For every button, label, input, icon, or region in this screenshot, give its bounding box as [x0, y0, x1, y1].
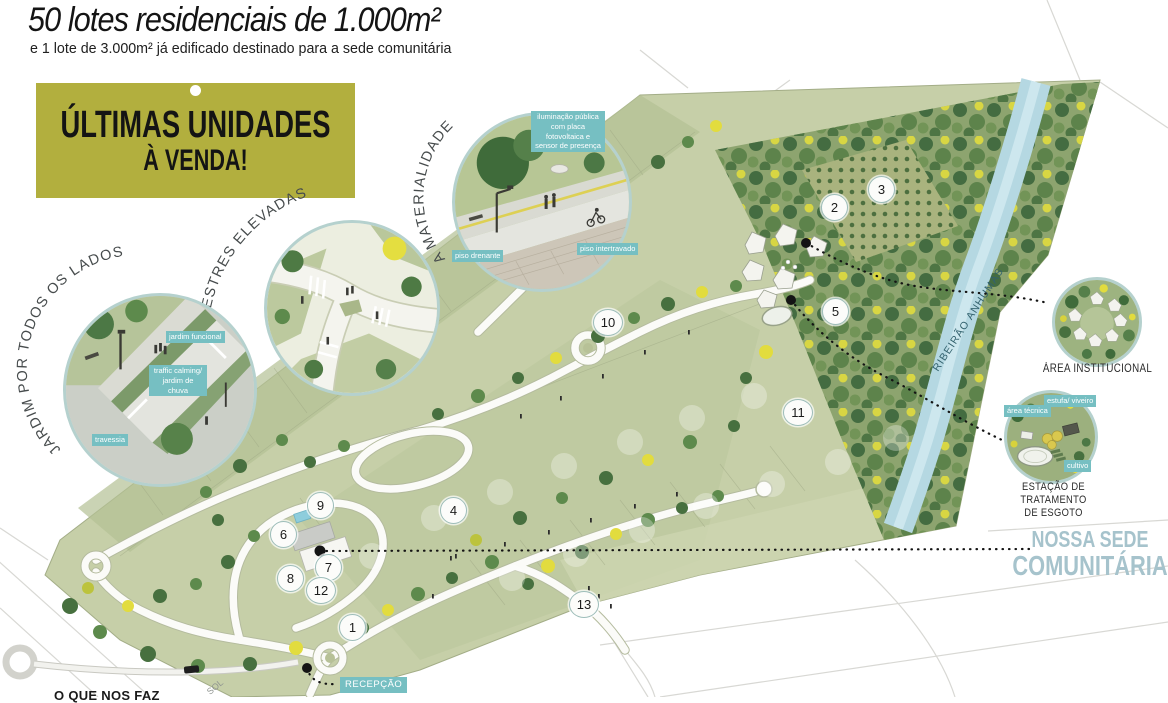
map-marker-8: 8: [277, 565, 304, 592]
chip-piso-intertravado: piso intertravado: [577, 243, 638, 255]
caption-ete-line1: ESTAÇÃO DE TRATAMENTO: [996, 481, 1111, 507]
callout-institutional-circle: [1052, 277, 1142, 367]
map-marker-9: 9: [307, 492, 334, 519]
map-marker-3: 3: [868, 176, 895, 203]
chip-piso-drenante: piso drenante: [452, 250, 503, 262]
map-marker-1: 1: [339, 614, 366, 641]
chip-traffic-calming: traffic calming/ jardim de chuva: [149, 365, 207, 396]
institutional-scene: [1055, 280, 1139, 364]
map-marker-2: 2: [821, 194, 848, 221]
map-marker-6: 6: [270, 521, 297, 548]
chip-travessia: travessia: [92, 434, 128, 446]
community-hq-line2: COMUNITÁRIA: [1008, 551, 1168, 580]
map-marker-5: 5: [822, 298, 849, 325]
crosswalk-scene: [267, 223, 437, 393]
map-marker-13: 13: [569, 591, 599, 618]
last-units-banner: ÚLTIMAS UNIDADES À VENDA!: [36, 83, 355, 198]
page-title: 50 lotes residenciais de 1.000m²: [28, 1, 440, 40]
banner-line2: À VENDA!: [143, 146, 247, 176]
community-hq-line1: NOSSA SEDE: [1008, 527, 1168, 551]
caption-estacao-tratamento: ESTAÇÃO DE TRATAMENTO DE ESGOTO: [996, 481, 1111, 520]
map-marker-11: 11: [783, 399, 813, 426]
banner-pin-dot: [190, 85, 201, 96]
community-hq-label: NOSSA SEDE COMUNITÁRIA: [985, 527, 1168, 580]
site-masterplan-page: { "header": { "title": "50 lotes residen…: [0, 0, 1168, 697]
page-subtitle: e 1 lote de 3.000m² já edificado destina…: [30, 40, 451, 57]
map-marker-4: 4: [440, 497, 467, 524]
chip-area-tecnica: área técnica: [1004, 405, 1051, 417]
banner-line1: ÚLTIMAS UNIDADES: [60, 106, 330, 144]
chip-recepcao: RECEPÇÃO: [340, 677, 407, 693]
chip-iluminacao: iluminação pública com placa fotovoltaic…: [531, 111, 605, 152]
chip-estufa-viveiro: estufa/ viveiro: [1044, 395, 1096, 407]
chip-jardim-funcional: jardim funcional: [166, 331, 225, 343]
map-marker-12: 12: [306, 577, 336, 604]
map-marker-10: 10: [593, 309, 623, 336]
bottom-partial-text: O QUE NOS FAZ: [54, 688, 160, 703]
chip-cultivo: cultivo: [1064, 460, 1091, 472]
callout-crosswalk-circle: [264, 220, 440, 396]
caption-area-institucional: ÁREA INSTITUCIONAL: [1036, 363, 1159, 375]
caption-ete-line2: DE ESGOTO: [996, 507, 1111, 520]
